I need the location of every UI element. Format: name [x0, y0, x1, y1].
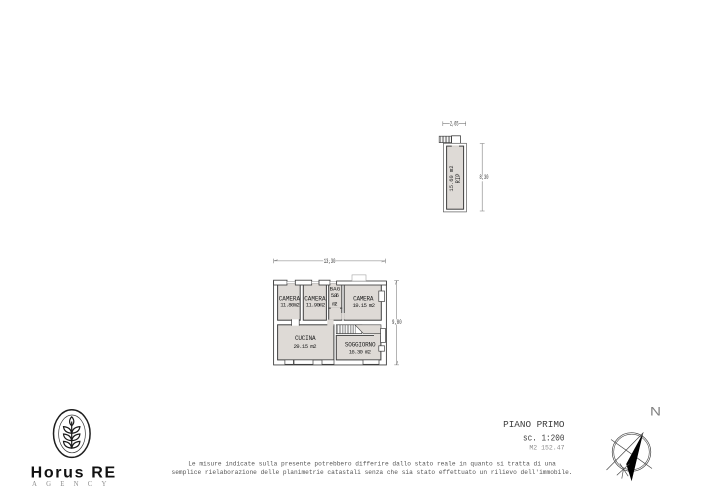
svg-text:2,65: 2,65	[450, 121, 459, 128]
svg-text:sc. 1:200: sc. 1:200	[523, 433, 565, 443]
svg-text:Horus RE: Horus RE	[31, 465, 116, 482]
svg-text:Le misure indicate sulla prese: Le misure indicate sulla presente potreb…	[188, 461, 556, 468]
svg-text:8,30: 8,30	[480, 174, 489, 181]
svg-text:M2 152.47: M2 152.47	[529, 445, 564, 452]
svg-text:11.80m2: 11.80m2	[280, 302, 300, 309]
svg-text:SOGGIORNO: SOGGIORNO	[345, 342, 376, 349]
svg-text:11.90m2: 11.90m2	[306, 302, 326, 309]
svg-text:m2: m2	[332, 300, 338, 307]
svg-text:19.15 m2: 19.15 m2	[353, 302, 376, 309]
svg-text:15.60 m2: 15.60 m2	[448, 165, 455, 191]
svg-text:RIP: RIP	[455, 173, 462, 183]
svg-text:semplice rielaborazione delle: semplice rielaborazione delle planimetri…	[171, 469, 572, 476]
svg-text:9,80: 9,80	[392, 319, 402, 326]
svg-text:N: N	[650, 406, 661, 418]
svg-text:29.15 m2: 29.15 m2	[294, 343, 318, 350]
svg-text:AGENCY: AGENCY	[32, 481, 114, 488]
svg-text:PIANO PRIMO: PIANO PRIMO	[503, 419, 565, 430]
svg-text:16.30 m2: 16.30 m2	[349, 349, 372, 356]
svg-text:5.86: 5.86	[331, 292, 340, 299]
svg-text:CUCINA: CUCINA	[295, 335, 316, 342]
svg-text:13,30: 13,30	[324, 258, 336, 265]
